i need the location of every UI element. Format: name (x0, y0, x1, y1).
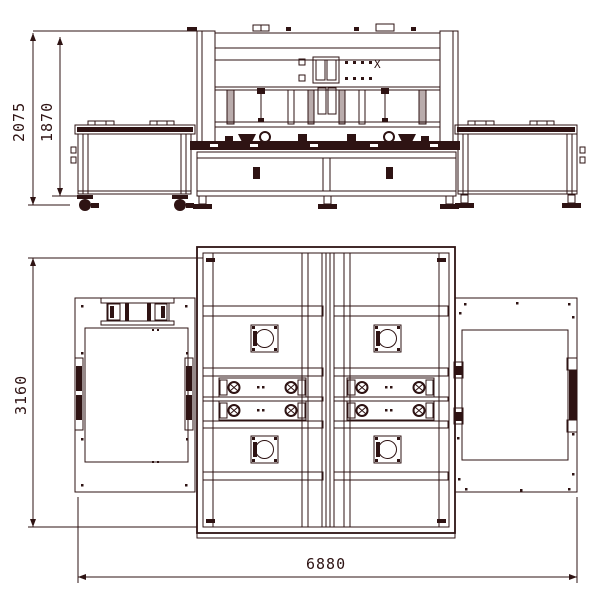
right-side-table-front (455, 121, 585, 208)
leveling-foot (193, 196, 212, 209)
pallet-clamp-top (101, 298, 174, 325)
left-column (197, 31, 215, 143)
right-side-table-plan (454, 298, 577, 492)
plan-view: 3160 6880 (12, 247, 577, 600)
door-handle-left (253, 167, 260, 179)
hanging-rod-left (257, 88, 265, 122)
hanging-rod-right (381, 88, 389, 122)
tooling-area (215, 88, 440, 127)
leveling-foot (562, 195, 581, 208)
leveling-foot (318, 196, 337, 209)
carriage (219, 378, 306, 397)
dim-label-1870: 1870 (38, 102, 56, 142)
drawing-sheet: 2075 1870 (0, 0, 600, 600)
machine-base-frame (193, 152, 459, 209)
engineering-drawing: 2075 1870 (0, 0, 600, 600)
carriage (347, 401, 434, 420)
panel-x-mark: X (374, 58, 381, 71)
caster-wheel (172, 195, 194, 211)
machine-head: X (187, 24, 440, 87)
left-side-table-front (71, 121, 195, 211)
clamp-band (190, 132, 460, 150)
dim-label-2075: 2075 (10, 102, 28, 142)
carriage (347, 378, 434, 397)
dim-inner-height: 1870 (38, 37, 80, 196)
left-side-table-plan (75, 298, 195, 600)
caster-wheel (77, 195, 99, 211)
leveling-foot (455, 195, 474, 208)
circular-mount (251, 325, 278, 352)
front-elevation-view: 2075 1870 (10, 24, 585, 211)
circular-mount (374, 325, 401, 352)
carriage (219, 401, 306, 420)
fastener-dots (81, 305, 189, 487)
dim-label-3160: 3160 (12, 375, 30, 415)
door-handle-right (386, 167, 393, 179)
dim-label-6880: 6880 (306, 555, 346, 573)
dim-overall-width: 6880 (78, 497, 577, 583)
machine-plan-body (197, 247, 455, 538)
circular-mount (374, 436, 401, 463)
circular-mount (251, 436, 278, 463)
control-panel: X (299, 57, 381, 83)
